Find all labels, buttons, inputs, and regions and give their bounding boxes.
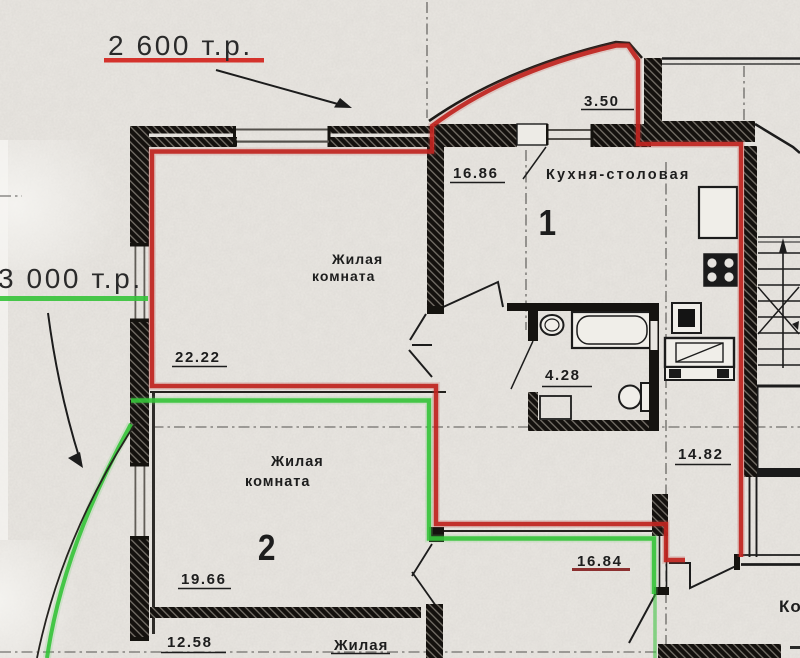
svg-text:2: 2 (258, 528, 276, 568)
svg-text:12.58: 12.58 (167, 634, 213, 651)
svg-text:16.84: 16.84 (577, 553, 623, 570)
svg-text:Жилая: Жилая (270, 454, 324, 470)
svg-text:Жилая: Жилая (333, 637, 388, 654)
svg-text:4.28: 4.28 (545, 367, 581, 384)
svg-text:Жилая: Жилая (331, 251, 383, 267)
svg-text:Кухня-столовая: Кухня-столовая (546, 167, 691, 183)
svg-text:Ко: Ко (779, 597, 800, 616)
svg-text:комната: комната (245, 474, 310, 490)
svg-text:22.22: 22.22 (175, 349, 221, 366)
svg-text:комната: комната (312, 268, 375, 284)
svg-text:19.66: 19.66 (181, 571, 227, 588)
svg-text:16.86: 16.86 (453, 165, 499, 182)
svg-text:3 000 т.р.: 3 000 т.р. (0, 263, 143, 294)
svg-text:2 600 т.р.: 2 600 т.р. (108, 30, 253, 61)
svg-text:1: 1 (539, 203, 557, 243)
svg-text:14.82: 14.82 (678, 446, 724, 463)
svg-text:3.50: 3.50 (584, 93, 620, 110)
